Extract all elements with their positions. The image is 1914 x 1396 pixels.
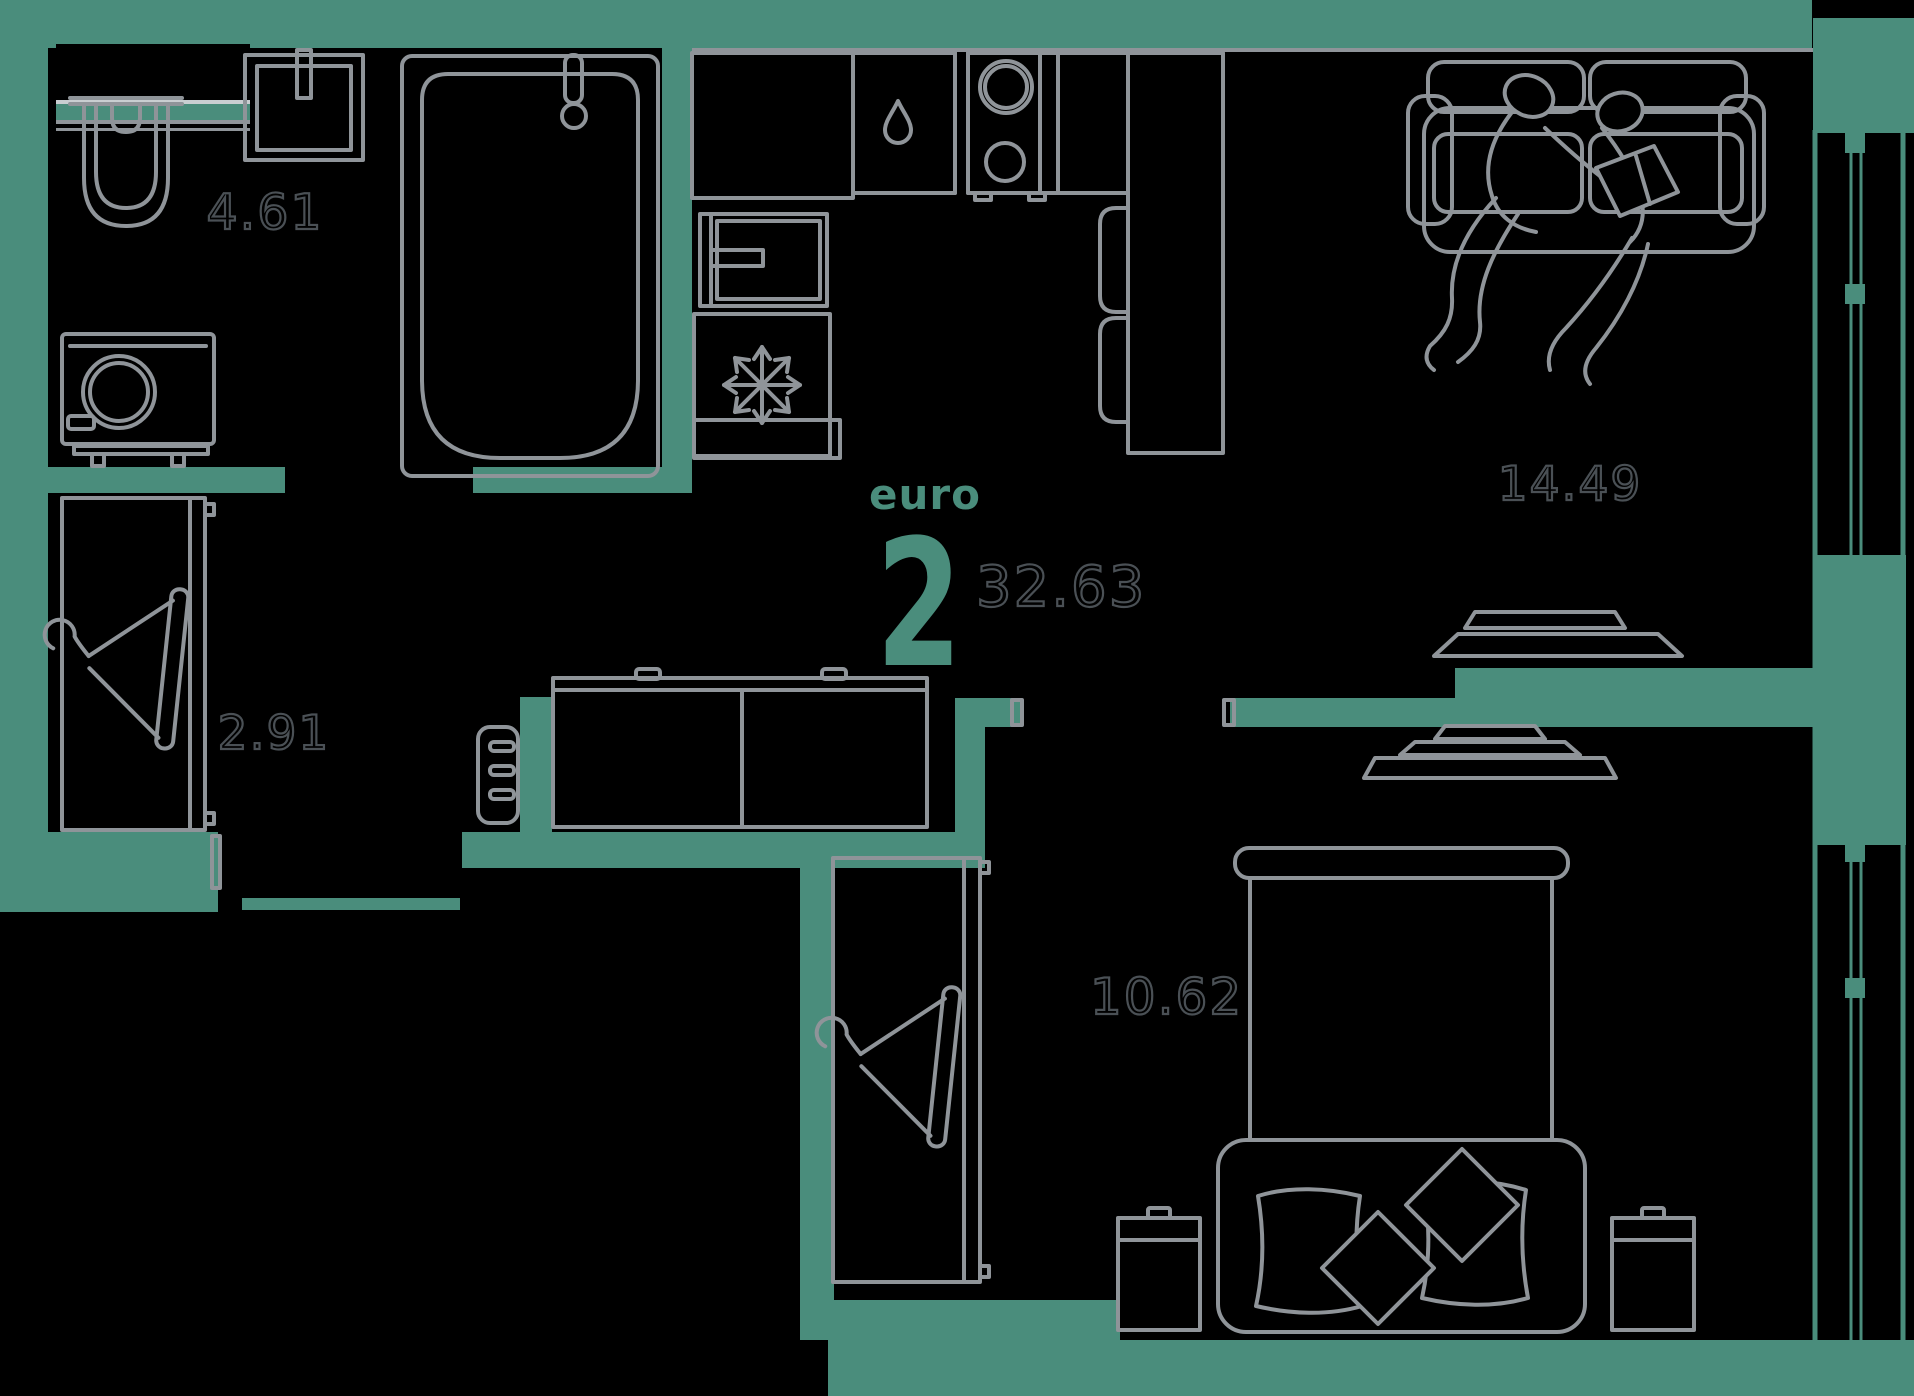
- wall-divider-band: [1230, 698, 1455, 727]
- living-room: 14.49: [1408, 62, 1764, 656]
- bed-icon: [1218, 848, 1585, 1332]
- wall-bathroom-bottom-b: [473, 467, 692, 493]
- ceiling-lamp-icon: [1434, 612, 1682, 656]
- wall-bottom-step: [828, 1300, 1120, 1342]
- counter-divider-lines: [955, 53, 1058, 193]
- nightstand-icon: [1118, 1208, 1200, 1330]
- wall-bottom-band: [828, 1340, 1914, 1396]
- ceiling-lamp-icon: [1364, 726, 1616, 778]
- wall-bath-kitchen-divider: [662, 0, 692, 467]
- hanger-icon: [34, 576, 189, 750]
- wall-stub-bench: [520, 697, 552, 832]
- sofa-icon: [1408, 62, 1764, 252]
- fridge-snowflake-icon: [694, 314, 830, 456]
- wall-column-mid: [800, 868, 834, 1340]
- wall-left: [0, 0, 48, 912]
- bar-counter-icon: [1128, 53, 1223, 453]
- wall-divider-thick: [1455, 668, 1813, 727]
- unit-badge: euro 2 32.63: [869, 470, 1146, 707]
- wall-corner-top-right: [1813, 18, 1914, 133]
- kitchen-sink-icon: [853, 53, 955, 193]
- unit-total-area: 32.63: [976, 555, 1146, 620]
- wall-hall-bottom: [462, 832, 985, 868]
- floor-plan: 4.61 2.91: [0, 0, 1914, 1396]
- oven-icon: [700, 214, 827, 306]
- door-leaf-icon: [694, 420, 840, 458]
- shoe-bench-icon: [478, 727, 518, 823]
- stove-burners-icon: [968, 53, 1058, 200]
- counter-worktop: [1058, 53, 1128, 193]
- hallway-area-label: 2.91: [218, 706, 331, 761]
- floor-plan-page: 4.61 2.91: [0, 0, 1914, 1396]
- wall-top: [0, 0, 1812, 48]
- nightstand-icon: [1612, 1208, 1694, 1330]
- washing-machine-icon: [62, 334, 214, 466]
- wall-block-mid-right: [1813, 555, 1906, 845]
- bar-stool-icon: [1100, 208, 1128, 312]
- people-reading-icon: [1427, 68, 1678, 384]
- entrance-threshold: [242, 898, 460, 910]
- bedroom: 10.62: [806, 700, 1694, 1332]
- wall-bedroom-left: [955, 727, 985, 832]
- bed-mattress: [1250, 878, 1552, 1140]
- bed-footboard: [1235, 848, 1568, 878]
- bedroom-wardrobe-icon: [806, 858, 989, 1282]
- bedroom-door-jamb-right: [1224, 700, 1234, 725]
- sink-drop-icon: [885, 101, 911, 143]
- bathtub-icon: [402, 55, 658, 476]
- bathroom-area-label: 4.61: [206, 184, 323, 241]
- bar-stool-icon: [1100, 318, 1128, 422]
- wall-hall-bottom-left: [0, 832, 218, 912]
- kitchen-living-area-label: 14.49: [1498, 457, 1643, 512]
- kitchen: [553, 53, 1223, 827]
- kitchen-counter-icon: [692, 53, 853, 198]
- hallway-wardrobe-icon: [34, 498, 214, 830]
- dresser-icon: [553, 669, 927, 827]
- wall-sink-icon: [245, 50, 363, 160]
- person-head: [1592, 87, 1647, 137]
- unit-rooms-count: 2: [876, 502, 962, 707]
- bedroom-area-label: 10.62: [1090, 968, 1243, 1026]
- wall-bathroom-bottom-a: [48, 467, 285, 493]
- hallway: 2.91: [34, 498, 518, 888]
